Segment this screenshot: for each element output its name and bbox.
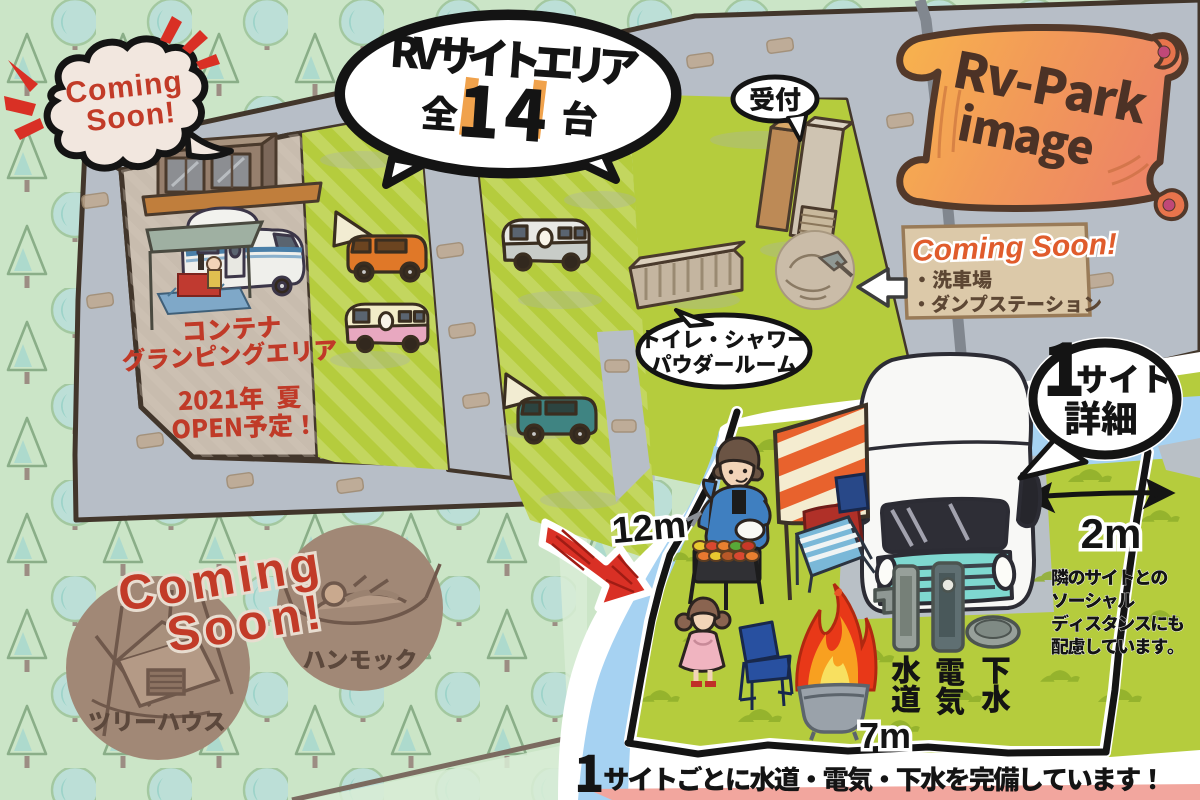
svg-text:2m: 2m [1081,510,1142,557]
svg-text:12m: 12m [610,504,687,551]
svg-text:7m: 7m [859,715,911,756]
